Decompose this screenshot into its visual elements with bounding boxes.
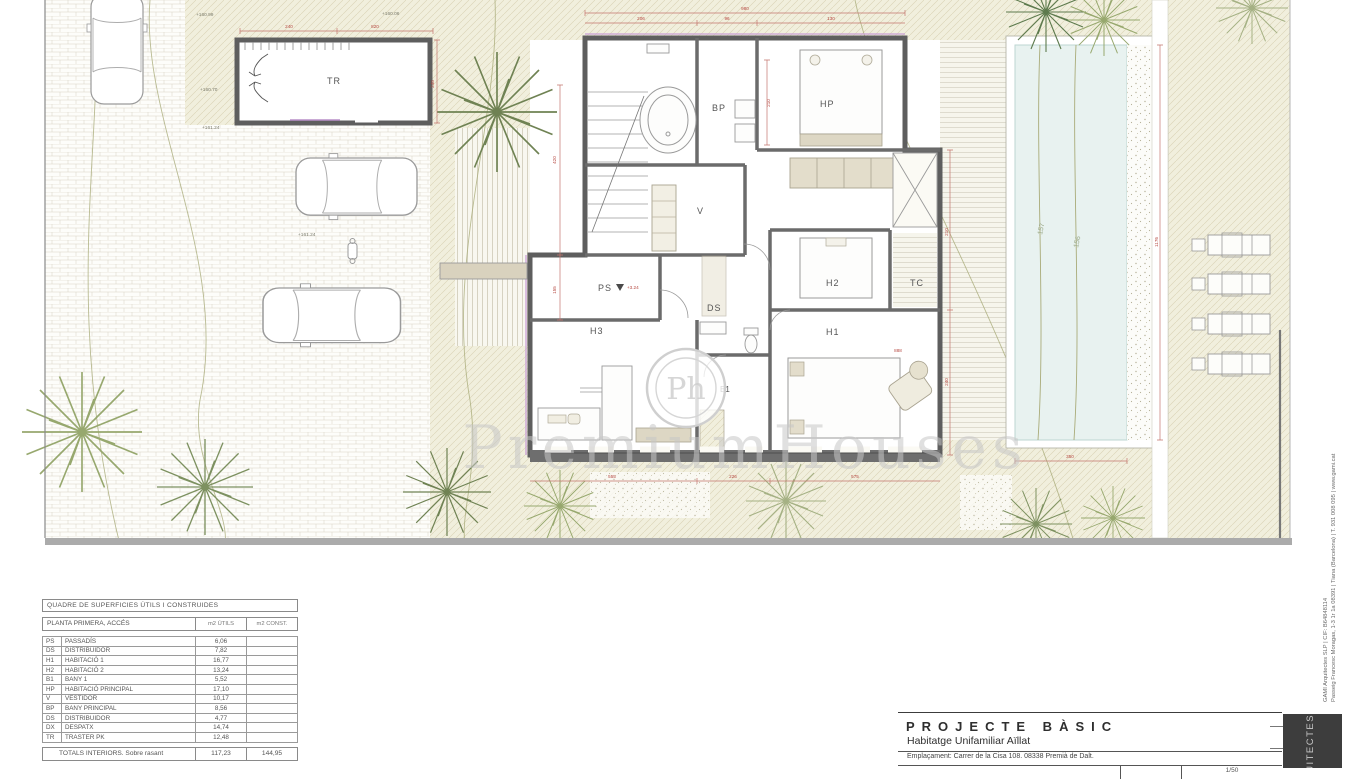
dimension-label: 130 bbox=[827, 16, 835, 21]
level-marker: +3.24 bbox=[616, 284, 639, 291]
bed-hp bbox=[800, 50, 882, 146]
bathtub-icon bbox=[640, 87, 696, 153]
watermark-text: PremiumHouses bbox=[462, 413, 1027, 483]
table-row: DXDESPATX14,74 bbox=[43, 723, 298, 733]
totals-label: TOTALS INTERIORS. Sobre rasant bbox=[43, 748, 196, 760]
room-label-ds: DS bbox=[707, 303, 722, 313]
architect-logo-text: ARQUITECTES bbox=[1305, 714, 1316, 768]
areas-totals: TOTALS INTERIORS. Sobre rasant 117,23 14… bbox=[42, 747, 298, 761]
dimension-label: 248 bbox=[430, 80, 435, 88]
room-label-v: V bbox=[697, 206, 704, 216]
table-row: VVESTIDOR10,17 bbox=[43, 694, 298, 704]
table-row: PSPASSADÍS6,06 bbox=[43, 637, 298, 647]
car-middle bbox=[296, 154, 417, 220]
dimension-label: 820 bbox=[371, 24, 379, 29]
elevation-3: +161.24 bbox=[202, 125, 220, 131]
table-row: TRTRASTER PK12,48 bbox=[43, 732, 298, 742]
dimension-label: 96 bbox=[724, 16, 730, 21]
elevation-5: +161.24 bbox=[298, 232, 316, 238]
dimension-label: 420 bbox=[552, 156, 557, 164]
entry-bridge bbox=[440, 263, 527, 279]
tick-mark bbox=[1270, 726, 1283, 727]
credit-line-1: GAMI Arquitectes SLP | CIF: B64848114 bbox=[1322, 502, 1330, 702]
elevation-1: +160.99 bbox=[196, 12, 214, 18]
room-label-tc: TC bbox=[910, 278, 924, 288]
project-location: Emplaçament: Carrer de la Cisa 108. 0833… bbox=[898, 751, 1282, 760]
watermark-logo-glyph: Ph bbox=[666, 372, 706, 407]
table-row: H2HABITACIÓ 213,24 bbox=[43, 665, 298, 675]
project-title: PROJECTE BÀSIC bbox=[906, 719, 1282, 734]
table-row: H1HABITACIÓ 116,77 bbox=[43, 656, 298, 666]
table-row: DSDISTRIBUIDOR4,77 bbox=[43, 713, 298, 723]
bed-h2 bbox=[800, 238, 872, 298]
table-row: BPBANY PRINCIPAL8,56 bbox=[43, 704, 298, 714]
table-row: B1BANY 15,52 bbox=[43, 675, 298, 685]
title-block-bottom-row: 1/50 bbox=[898, 765, 1282, 779]
table-row: HPHABITACIÓ PRINCIPAL17,10 bbox=[43, 684, 298, 694]
tick-mark bbox=[1270, 748, 1283, 749]
areas-table: QUADRE DE SUPERFICIES ÚTILS I CONSTRUIDE… bbox=[42, 599, 298, 761]
room-label-h2: H2 bbox=[826, 278, 840, 288]
dimension-label: 240 bbox=[944, 378, 949, 386]
dimension-label: 206 bbox=[637, 16, 645, 21]
title-block: PROJECTE BÀSIC Habitatge Unifamiliar Aïl… bbox=[898, 712, 1282, 769]
dimension-label: 240 bbox=[285, 24, 293, 29]
pergola-trellis bbox=[893, 153, 937, 227]
tc-terrace bbox=[893, 233, 937, 307]
project-subtitle: Habitatge Unifamiliar Aïllat bbox=[907, 735, 1282, 747]
room-label-hp: HP bbox=[820, 99, 835, 109]
totals-const: 144,95 bbox=[247, 748, 297, 760]
elevation-2: +160.70 bbox=[200, 87, 218, 93]
dimension-label: 1176 bbox=[1154, 237, 1159, 247]
room-label-ps: PS bbox=[598, 283, 612, 293]
room-label-h3: H3 bbox=[590, 326, 604, 336]
col-utils: m2 ÚTILS bbox=[196, 618, 247, 630]
areas-table-header: PLANTA PRIMERA, ACCÉS m2 ÚTILS m2 CONST. bbox=[42, 617, 298, 631]
car-top-left bbox=[87, 0, 147, 104]
totals-utils: 117,23 bbox=[196, 748, 247, 760]
section-label: PLANTA PRIMERA, ACCÉS bbox=[43, 618, 196, 630]
architect-credit: GAMI Arquitectes SLP | CIF: B64848114 Pa… bbox=[1322, 502, 1346, 702]
car-lower bbox=[263, 284, 401, 347]
room-label-tr: TR bbox=[327, 76, 341, 86]
room-label-h1: H1 bbox=[826, 327, 840, 337]
wardrobe-v bbox=[652, 185, 676, 251]
dimension-label: 210 bbox=[944, 228, 949, 236]
table-row: DSDISTRIBUIDOR7,82 bbox=[43, 646, 298, 656]
areas-rows: PSPASSADÍS6,06 DSDISTRIBUIDOR7,82 H1HABI… bbox=[42, 636, 298, 743]
floor-plan-drawing: 157 156 240 bbox=[0, 0, 1366, 545]
svg-text:+3.24: +3.24 bbox=[627, 285, 639, 290]
dimension-label: 210 bbox=[766, 99, 771, 107]
dimension-label: 155 bbox=[552, 286, 557, 294]
architect-logo-box: ARQUITECTES bbox=[1283, 714, 1342, 768]
areas-table-title: QUADRE DE SUPERFICIES ÚTILS I CONSTRUIDE… bbox=[42, 599, 298, 612]
room-label-bp: BP bbox=[712, 103, 726, 113]
plan-sheet: 157 156 240 bbox=[0, 0, 1366, 768]
dimension-label: 888 bbox=[894, 348, 902, 353]
wardrobe-hp bbox=[790, 158, 898, 188]
house-plan bbox=[526, 34, 1010, 462]
elevation-4: +160.06 bbox=[382, 11, 400, 17]
dimension-label: 350 bbox=[1066, 454, 1074, 459]
dimension-label: 980 bbox=[741, 6, 749, 11]
col-const: m2 CONST. bbox=[247, 618, 297, 630]
credit-line-2: Passeig Francesc Moragas, 1-3 1r 1a 0839… bbox=[1330, 502, 1338, 702]
